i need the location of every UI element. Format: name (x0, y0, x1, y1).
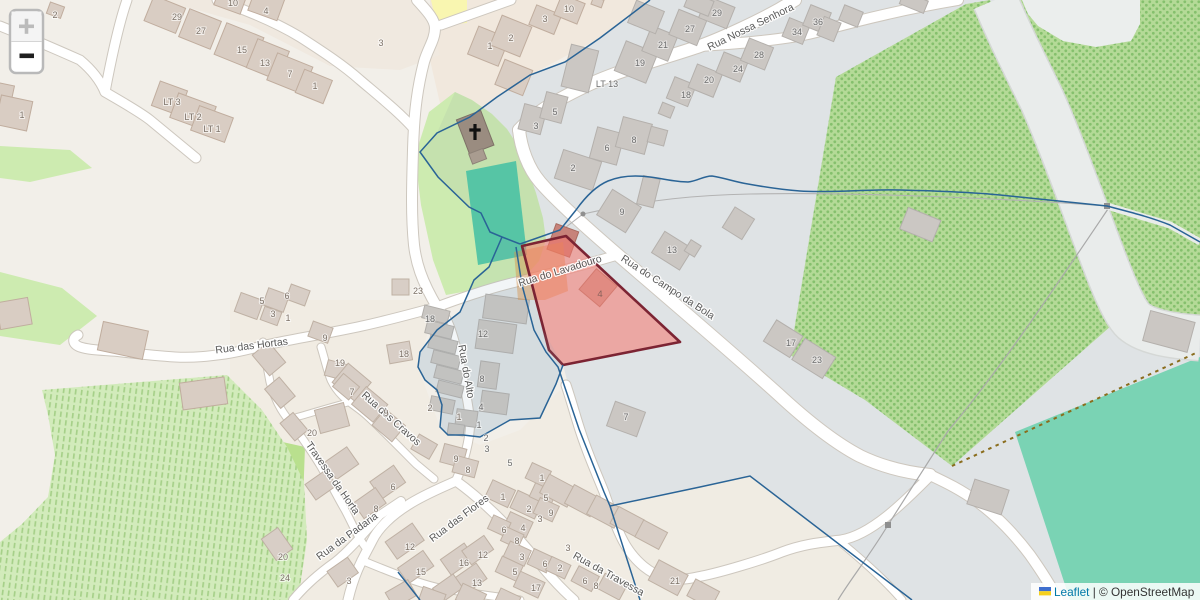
svg-text:LT 2: LT 2 (184, 112, 201, 122)
svg-text:1: 1 (476, 420, 481, 430)
svg-text:3: 3 (519, 552, 524, 562)
svg-text:15: 15 (237, 45, 247, 55)
svg-text:6: 6 (604, 143, 609, 153)
svg-text:8: 8 (373, 504, 378, 514)
svg-text:12: 12 (478, 329, 488, 339)
svg-text:4: 4 (478, 402, 483, 412)
svg-text:1: 1 (539, 473, 544, 483)
svg-text:2: 2 (508, 33, 513, 43)
svg-text:1: 1 (456, 412, 461, 422)
svg-text:8: 8 (465, 465, 470, 475)
svg-text:17: 17 (531, 583, 541, 593)
svg-text:6: 6 (390, 482, 395, 492)
svg-text:9: 9 (619, 207, 624, 217)
svg-text:9: 9 (453, 454, 458, 464)
svg-text:1: 1 (487, 41, 492, 51)
svg-text:7: 7 (287, 69, 292, 79)
svg-text:21: 21 (670, 576, 680, 586)
svg-text:3: 3 (542, 14, 547, 24)
svg-text:24: 24 (733, 64, 743, 74)
svg-text:6: 6 (284, 291, 289, 301)
svg-text:8: 8 (631, 135, 636, 145)
svg-text:13: 13 (472, 578, 482, 588)
svg-text:1: 1 (500, 492, 505, 502)
svg-text:10: 10 (228, 0, 238, 8)
svg-text:17: 17 (786, 338, 796, 348)
svg-text:1: 1 (312, 81, 317, 91)
svg-text:29: 29 (712, 8, 722, 18)
svg-text:4: 4 (263, 6, 268, 16)
svg-text:2: 2 (570, 163, 575, 173)
svg-text:9: 9 (322, 333, 327, 343)
svg-text:3: 3 (378, 38, 383, 48)
svg-text:13: 13 (667, 245, 677, 255)
svg-text:5: 5 (552, 107, 557, 117)
svg-text:36: 36 (813, 17, 823, 27)
svg-text:LT 13: LT 13 (596, 79, 618, 89)
svg-text:7: 7 (623, 412, 628, 422)
svg-text:21: 21 (658, 40, 668, 50)
svg-text:6: 6 (542, 559, 547, 569)
svg-text:7: 7 (349, 387, 354, 397)
svg-text:15: 15 (416, 567, 426, 577)
svg-text:6: 6 (501, 525, 506, 535)
svg-text:3: 3 (537, 514, 542, 524)
svg-text:9: 9 (383, 408, 388, 418)
svg-text:23: 23 (413, 286, 423, 296)
svg-text:2: 2 (52, 10, 57, 20)
svg-text:2: 2 (557, 563, 562, 573)
svg-text:1: 1 (19, 110, 24, 120)
svg-text:20: 20 (307, 428, 317, 438)
svg-text:2: 2 (483, 433, 488, 443)
svg-text:23: 23 (812, 355, 822, 365)
svg-text:5: 5 (512, 567, 517, 577)
svg-text:4: 4 (597, 289, 602, 300)
svg-text:4: 4 (520, 523, 525, 533)
svg-text:28: 28 (754, 50, 764, 60)
svg-text:27: 27 (685, 24, 695, 34)
svg-text:24: 24 (280, 573, 290, 583)
svg-text:18: 18 (399, 349, 409, 359)
svg-text:2: 2 (427, 403, 432, 413)
svg-text:16: 16 (459, 558, 469, 568)
svg-text:18: 18 (681, 90, 691, 100)
svg-text:6: 6 (582, 576, 587, 586)
svg-text:8: 8 (479, 374, 484, 384)
svg-text:3: 3 (484, 444, 489, 454)
svg-text:20: 20 (704, 75, 714, 85)
svg-text:18: 18 (425, 314, 435, 324)
svg-text:12: 12 (405, 542, 415, 552)
svg-text:29: 29 (172, 12, 182, 22)
svg-text:3: 3 (533, 121, 538, 131)
svg-text:LT 3: LT 3 (163, 97, 180, 107)
svg-text:9: 9 (548, 508, 553, 518)
svg-text:34: 34 (792, 27, 802, 37)
svg-text:5: 5 (543, 493, 548, 503)
svg-text:12: 12 (478, 550, 488, 560)
svg-text:Leaflet | © OpenStreetMap: Leaflet | © OpenStreetMap (1054, 585, 1195, 599)
svg-text:20: 20 (278, 552, 288, 562)
svg-text:2: 2 (526, 504, 531, 514)
svg-text:19: 19 (635, 58, 645, 68)
svg-text:8: 8 (514, 536, 519, 546)
svg-text:8: 8 (593, 581, 598, 591)
svg-text:13: 13 (260, 58, 270, 68)
svg-text:5: 5 (259, 296, 264, 306)
svg-text:10: 10 (564, 4, 574, 14)
svg-text:27: 27 (196, 26, 206, 36)
svg-text:LT 1: LT 1 (203, 124, 220, 134)
svg-text:3: 3 (565, 543, 570, 553)
svg-text:5: 5 (507, 458, 512, 468)
svg-text:19: 19 (335, 358, 345, 368)
svg-text:1: 1 (285, 313, 290, 323)
svg-text:3: 3 (346, 576, 351, 586)
svg-text:3: 3 (270, 309, 275, 319)
